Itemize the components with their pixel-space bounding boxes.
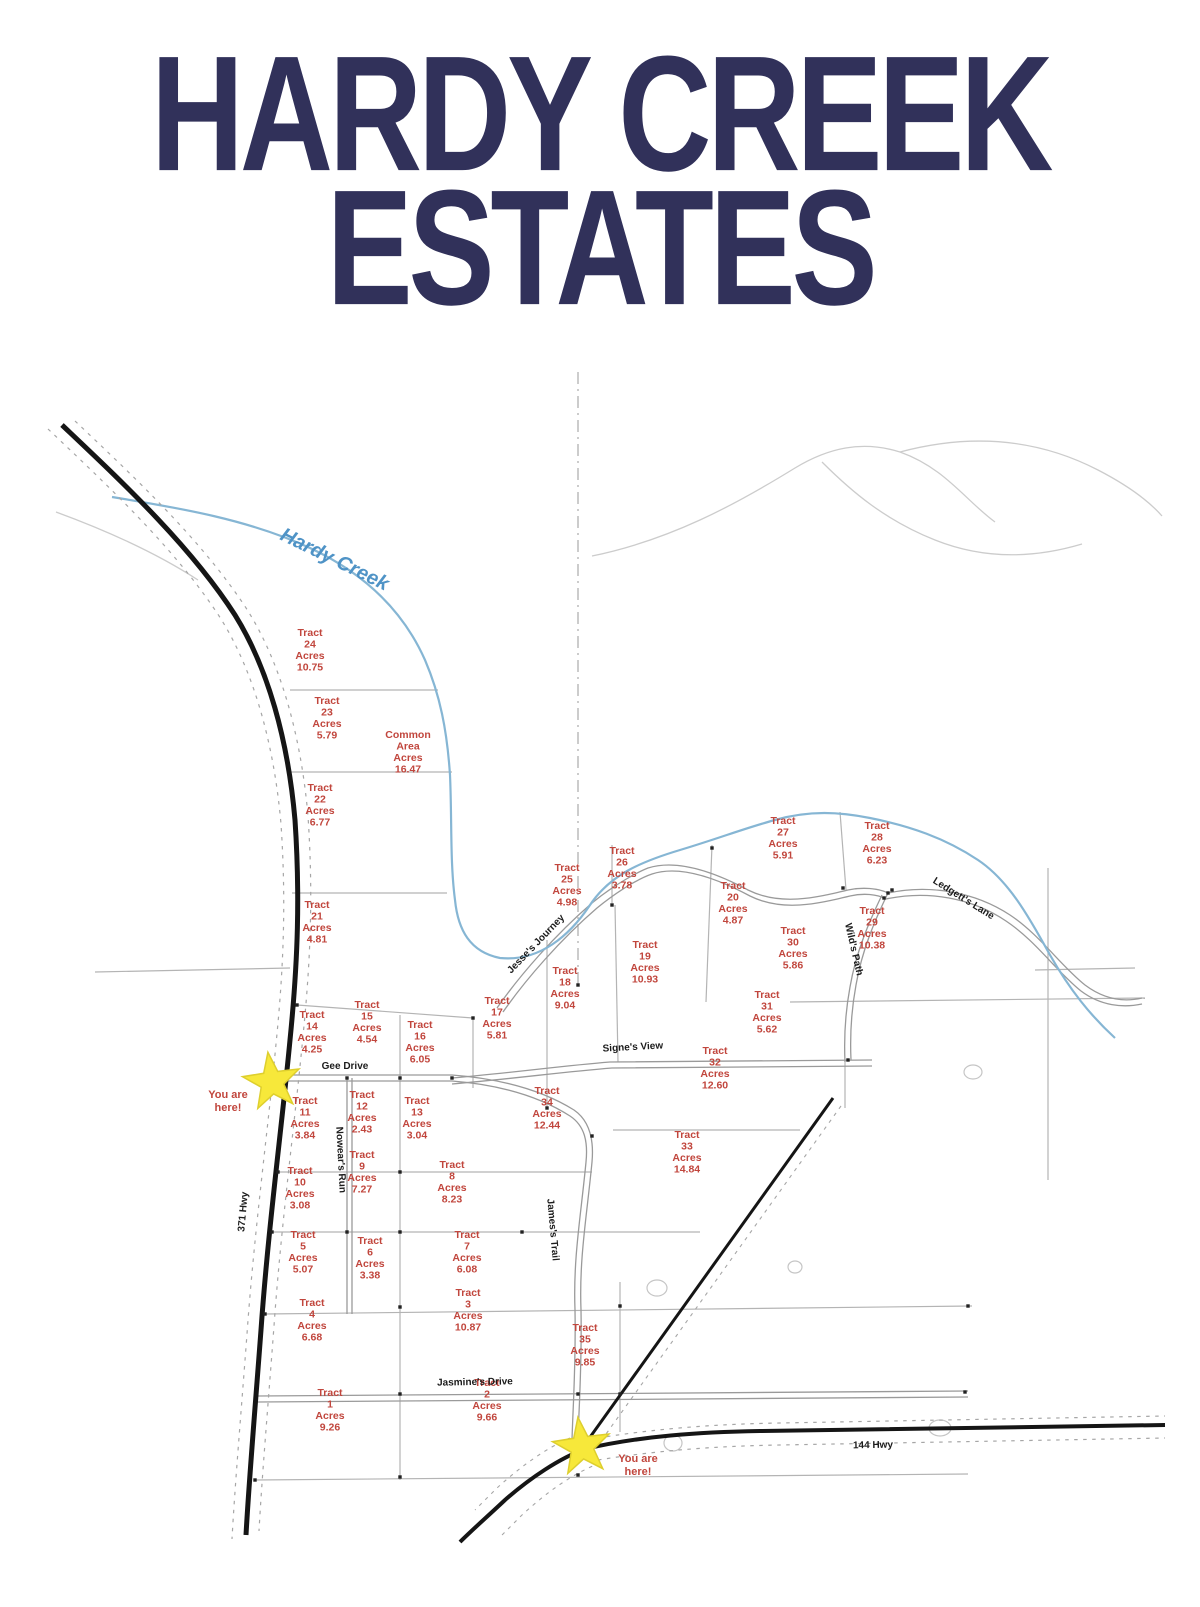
you-are-here-label-2: You arehere! bbox=[618, 1453, 658, 1478]
tract-5-label: Tract5Acres5.07 bbox=[288, 1229, 317, 1276]
tract-4-label: Tract4Acres6.68 bbox=[297, 1297, 326, 1344]
tract-14-label: Tract14Acres4.25 bbox=[297, 1009, 326, 1056]
tract-30-label: Tract30Acres5.86 bbox=[778, 925, 807, 972]
creek-label: Hardy Creek bbox=[277, 524, 393, 596]
tract-11-label: Tract11Acres3.84 bbox=[290, 1095, 319, 1142]
tract-1-label: Tract1Acres9.26 bbox=[315, 1387, 344, 1434]
road-label-james-s-trail: James's Trail bbox=[544, 1198, 560, 1261]
tract-20-label: Tract20Acres4.87 bbox=[718, 880, 747, 927]
tract-31-label: Tract31Acres5.62 bbox=[752, 989, 781, 1036]
tract-10-label: Tract10Acres3.08 bbox=[285, 1165, 314, 1212]
tract-29-label: Tract29Acres10.38 bbox=[857, 905, 886, 952]
road-label-nowear-s-run: Nowear's Run bbox=[333, 1126, 347, 1193]
tract-35-label: Tract35Acres9.85 bbox=[570, 1322, 599, 1369]
road-label-jasmine-s-drive: Jasmine's Drive bbox=[437, 1376, 513, 1388]
tract-26-label: Tract26Acres3.78 bbox=[607, 845, 636, 892]
tract-27-label: Tract27Acres5.91 bbox=[768, 815, 797, 862]
highways bbox=[48, 421, 1165, 1542]
road-label-gee-drive: Gee Drive bbox=[322, 1061, 369, 1072]
tract-18-label: Tract18Acres9.04 bbox=[550, 965, 579, 1012]
tract-17-label: Tract17Acres5.81 bbox=[482, 995, 511, 1042]
plat-map-page: HARDY CREEK ESTATES bbox=[0, 0, 1200, 1607]
tract-8-label: Tract8Acres8.23 bbox=[437, 1159, 466, 1206]
road-label-371-hwy: 371 Hwy bbox=[236, 1191, 250, 1232]
tract-24-label: Tract24Acres10.75 bbox=[295, 627, 324, 674]
tract-22-label: Tract22Acres6.77 bbox=[305, 782, 334, 829]
terrain-contours bbox=[56, 441, 1162, 580]
tract-25-label: Tract25Acres4.98 bbox=[552, 862, 581, 909]
plat-map: Tract1Acres9.26Tract2Acres9.66Tract3Acre… bbox=[0, 0, 1200, 1607]
tract-6-label: Tract6Acres3.38 bbox=[355, 1235, 384, 1282]
parcel-lines bbox=[95, 690, 1145, 1480]
you-are-here-label-1: You arehere! bbox=[208, 1089, 248, 1114]
common-area-label: CommonAreaAcres16.47 bbox=[385, 729, 431, 776]
tract-23-label: Tract23Acres5.79 bbox=[312, 695, 341, 742]
tract-3-label: Tract3Acres10.87 bbox=[453, 1287, 482, 1334]
tract-9-label: Tract9Acres7.27 bbox=[347, 1149, 376, 1196]
tract-12-label: Tract12Acres2.43 bbox=[347, 1089, 376, 1136]
road-label-signe-s-view: Signe's View bbox=[602, 1040, 663, 1054]
tract-16-label: Tract16Acres6.05 bbox=[405, 1019, 434, 1066]
road-label-ledgett-s-lane: Ledgett's Lane bbox=[931, 876, 997, 923]
hardy-creek bbox=[112, 497, 1115, 1038]
tract-34-label: Tract34Acres12.44 bbox=[532, 1085, 561, 1132]
tract-21-label: Tract21Acres4.81 bbox=[302, 899, 331, 946]
tract-7-label: Tract7Acres6.08 bbox=[452, 1229, 481, 1276]
tract-33-label: Tract33Acres14.84 bbox=[672, 1129, 701, 1176]
tract-13-label: Tract13Acres3.04 bbox=[402, 1095, 431, 1142]
road-label-144-hwy: 144 Hwy bbox=[853, 1440, 894, 1452]
tract-28-label: Tract28Acres6.23 bbox=[862, 820, 891, 867]
tract-15-label: Tract15Acres4.54 bbox=[352, 999, 381, 1046]
tract-32-label: Tract32Acres12.60 bbox=[700, 1045, 729, 1092]
tract-19-label: Tract19Acres10.93 bbox=[630, 939, 659, 986]
